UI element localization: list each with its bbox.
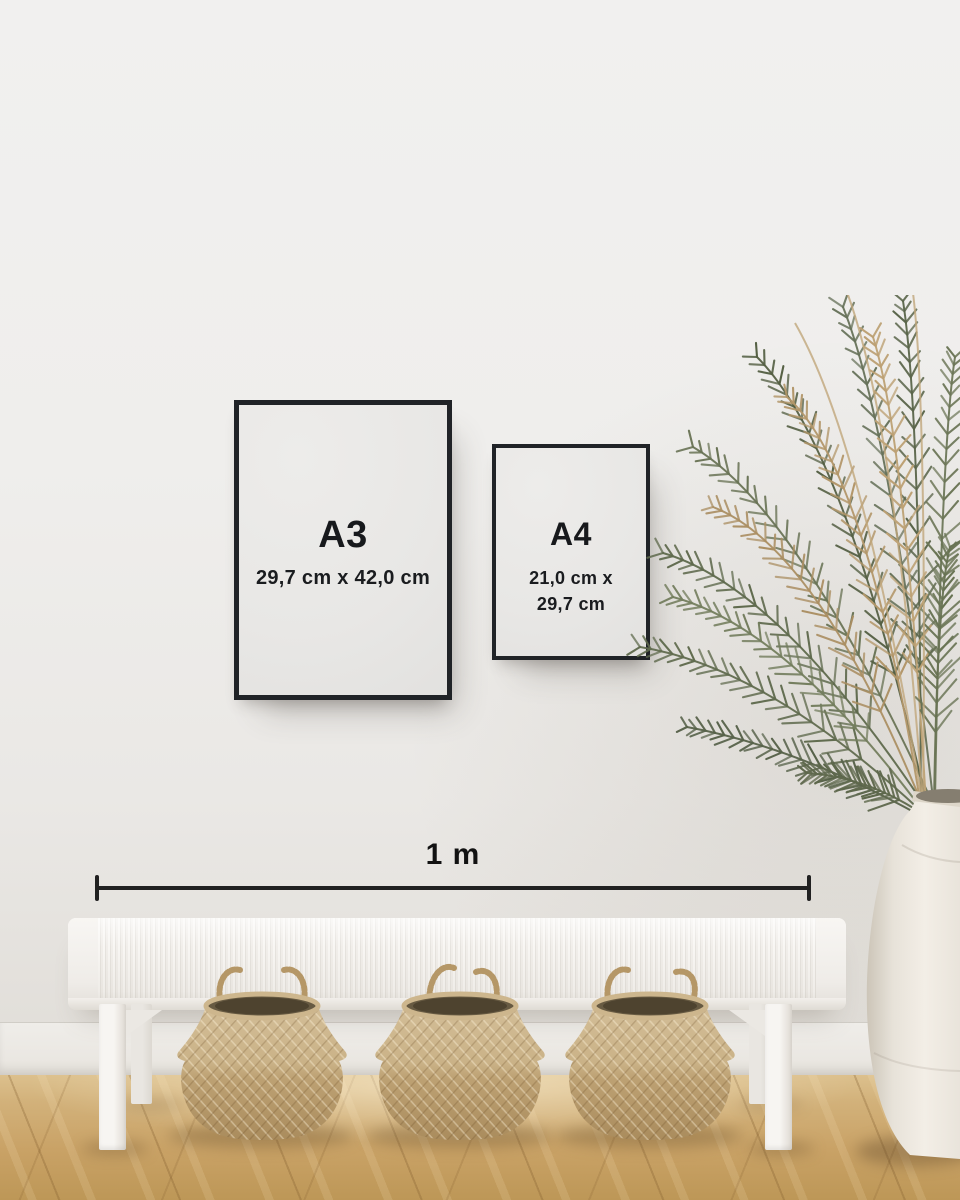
scale-bar: 1 m [95,838,811,902]
bench-leg-front-right [765,1004,792,1150]
ceramic-vase [862,785,960,1165]
poster-size-mockup-scene: A3 29,7 cm x 42,0 cm A4 21,0 cm x 29,7 c… [0,0,960,1200]
bench-leg-front-left [99,1004,126,1150]
scale-bar-label: 1 m [95,838,811,872]
seagrass-basket [368,958,552,1144]
bench-gusset-left [126,1010,162,1036]
seagrass-basket [558,958,742,1144]
seagrass-basket [170,958,354,1144]
frame-a3-dimensions: 29,7 cm x 42,0 cm [256,567,430,590]
frame-a3-label: A3 [318,514,368,557]
palm-plant [545,295,960,865]
scale-line [97,886,809,890]
scale-tick-left [95,875,99,901]
scale-tick-right [807,875,811,901]
frame-a3: A3 29,7 cm x 42,0 cm [234,400,452,700]
